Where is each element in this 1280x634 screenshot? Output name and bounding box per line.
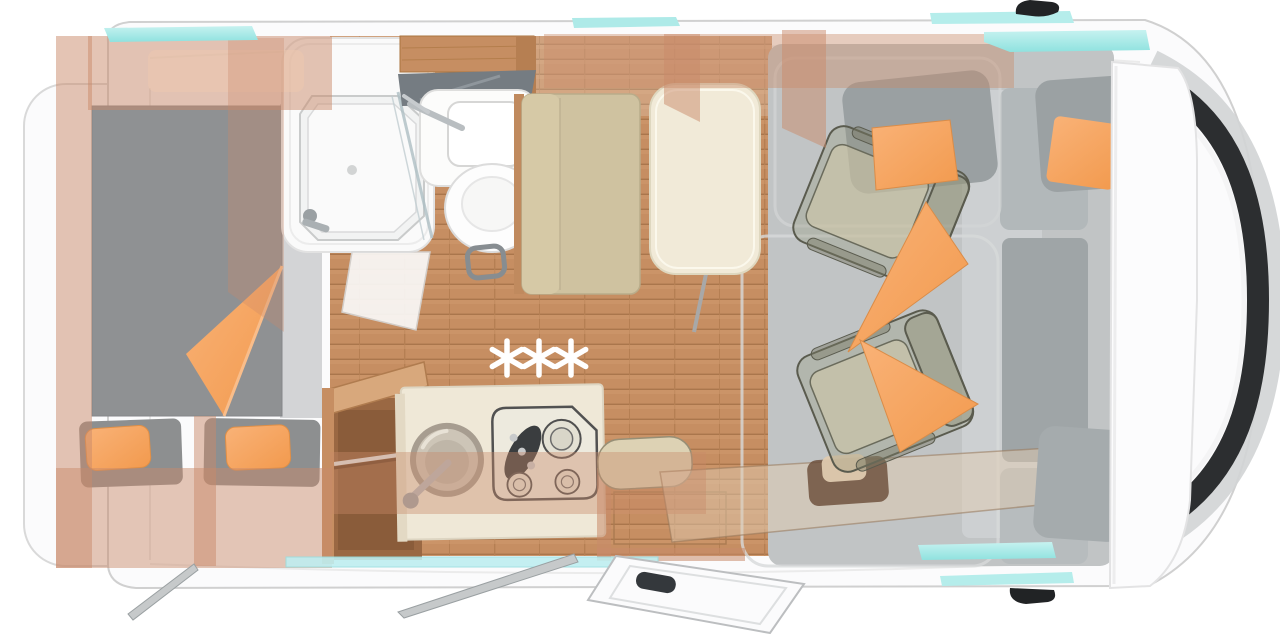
window-cab-top-wide [984, 30, 1150, 52]
pillow-left [85, 425, 152, 471]
pillow-right [225, 424, 291, 470]
toilet-bowl [462, 177, 522, 231]
three-stars-decoration [492, 341, 585, 375]
window-rear-top [104, 26, 258, 42]
floorplan-graphic [0, 0, 1280, 634]
bench-backrest [522, 94, 560, 294]
floorplan-canvas: ✳✳✳ [0, 0, 1280, 634]
window-cab-bottom-wide [918, 542, 1056, 560]
bed-partition [228, 38, 284, 332]
shower-drain [347, 165, 357, 175]
side-mirror-bottom [1010, 588, 1055, 604]
washbasin-bowl [448, 102, 522, 166]
side-mirror-top [1016, 0, 1059, 17]
wall-kitchen-band [330, 452, 706, 514]
shower-tray-inner [308, 104, 416, 232]
awning-rail [286, 557, 658, 567]
a-pillar-band [1110, 62, 1197, 588]
seat-pillow-front [872, 120, 958, 190]
a-pillar-edge [1114, 66, 1116, 584]
wall-divider-cushions [194, 416, 216, 566]
front-end [1110, 62, 1268, 588]
burner-large-inner [550, 428, 572, 450]
partition-wedge-2 [782, 30, 826, 148]
dinette-table [650, 84, 760, 274]
vanity-counter [400, 36, 534, 72]
locker-centre-top [544, 34, 1014, 88]
